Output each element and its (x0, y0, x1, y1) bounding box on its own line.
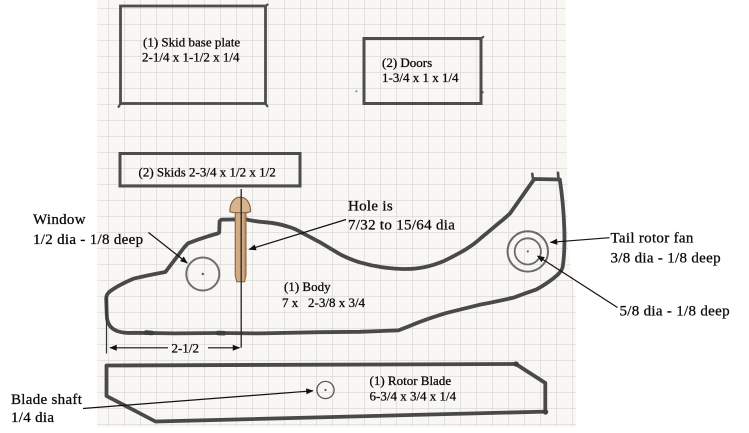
svg-text:1/2 dia - 1/8 deep: 1/2 dia - 1/8 deep (33, 232, 143, 248)
svg-text:6-3/4 x 3/4 x 1/4: 6-3/4 x 3/4 x 1/4 (370, 389, 457, 404)
svg-text:(1) Skid base plate: (1) Skid base plate (143, 35, 240, 50)
svg-text:5/8 dia - 1/8 deep: 5/8 dia - 1/8 deep (620, 304, 730, 320)
svg-text:Hole is: Hole is (348, 199, 393, 215)
svg-text:2-1/2: 2-1/2 (172, 341, 199, 356)
svg-text:2-1/4 x 1-1/2 x 1/4: 2-1/4 x 1-1/2 x 1/4 (142, 50, 240, 65)
svg-text:(1) Body: (1) Body (284, 279, 331, 294)
svg-text:7 x 2-3/8 x 3/4: 7 x 2-3/8 x 3/4 (282, 295, 366, 310)
svg-text:Blade shaft: Blade shaft (11, 392, 83, 408)
svg-text:1/4 dia: 1/4 dia (11, 410, 54, 426)
svg-text:Tail rotor fan: Tail rotor fan (611, 231, 694, 247)
svg-text:(2) Doors: (2) Doors (382, 55, 432, 70)
svg-text:3/8 dia - 1/8 deep: 3/8 dia - 1/8 deep (611, 251, 721, 267)
svg-text:(2) Skids 2-3/4 x 1/2 x 1/2: (2) Skids 2-3/4 x 1/2 x 1/2 (139, 165, 276, 180)
svg-text:1-3/4 x 1 x 1/4: 1-3/4 x 1 x 1/4 (382, 70, 459, 85)
svg-text:7/32 to 15/64 dia: 7/32 to 15/64 dia (348, 218, 455, 234)
svg-text:(1) Rotor Blade: (1) Rotor Blade (370, 373, 452, 388)
svg-text:Window: Window (33, 212, 86, 228)
